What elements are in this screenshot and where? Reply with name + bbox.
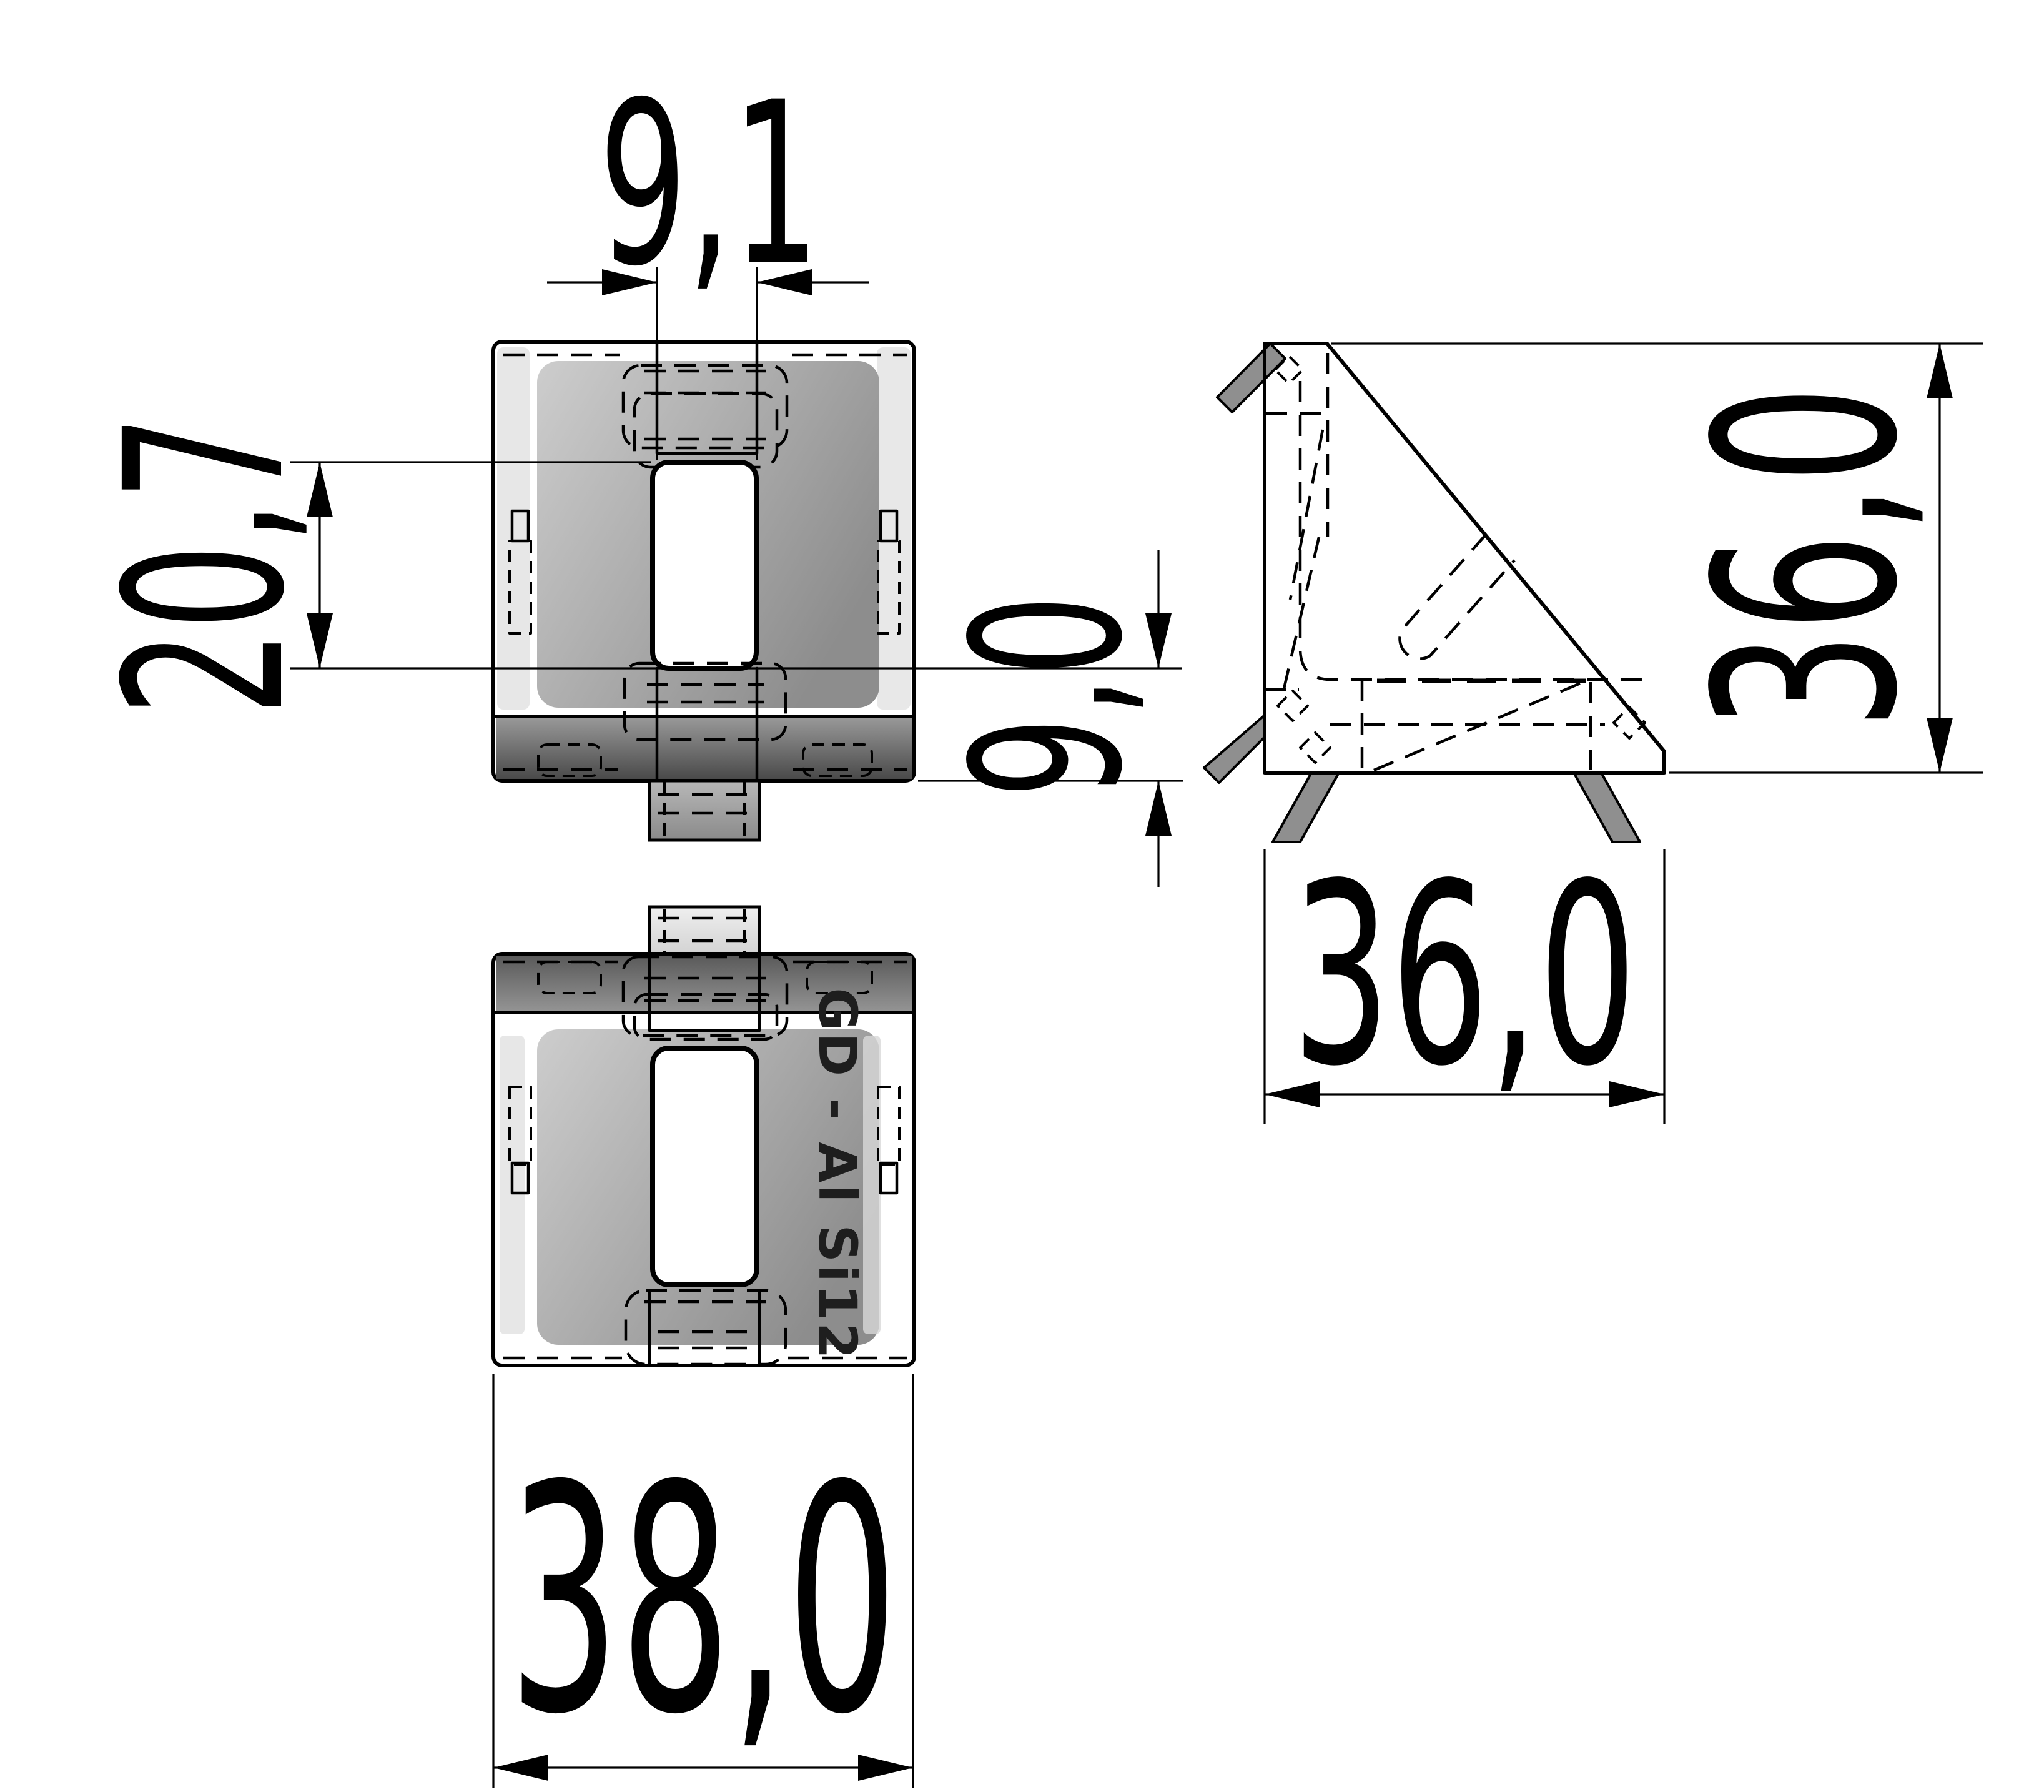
front-view xyxy=(493,342,914,840)
dim-profile-depth: 36,0 xyxy=(1265,831,1664,1124)
drawing-canvas: GD - Al Si12 9,1 20,7 xyxy=(0,0,2044,1792)
dimension-label-overall-width: 38,0 xyxy=(508,1419,897,1783)
dimension-label-slot-width: 9,1 xyxy=(599,54,821,315)
dimension-label-profile-height: 36,0 xyxy=(1662,385,1953,730)
dimension-label-slot-height: 20,7 xyxy=(78,414,332,716)
front-base-band xyxy=(496,716,912,779)
dimension-label-profile-depth: 36,0 xyxy=(1292,831,1637,1121)
paper-background xyxy=(0,0,2044,1792)
dimension-label-base-thickness: 9,0 xyxy=(928,595,1168,798)
technical-drawing: GD - Al Si12 9,1 20,7 xyxy=(0,0,2044,1792)
front-bottom-tab xyxy=(649,781,759,840)
dim-overall-width: 38,0 xyxy=(493,1374,913,1788)
bottom-slot xyxy=(653,1048,757,1285)
material-label: GD - Al Si12 xyxy=(807,988,868,1360)
front-slot xyxy=(653,462,756,668)
bottom-view: GD - Al Si12 xyxy=(493,907,914,1365)
bottom-top-tab xyxy=(649,907,759,956)
